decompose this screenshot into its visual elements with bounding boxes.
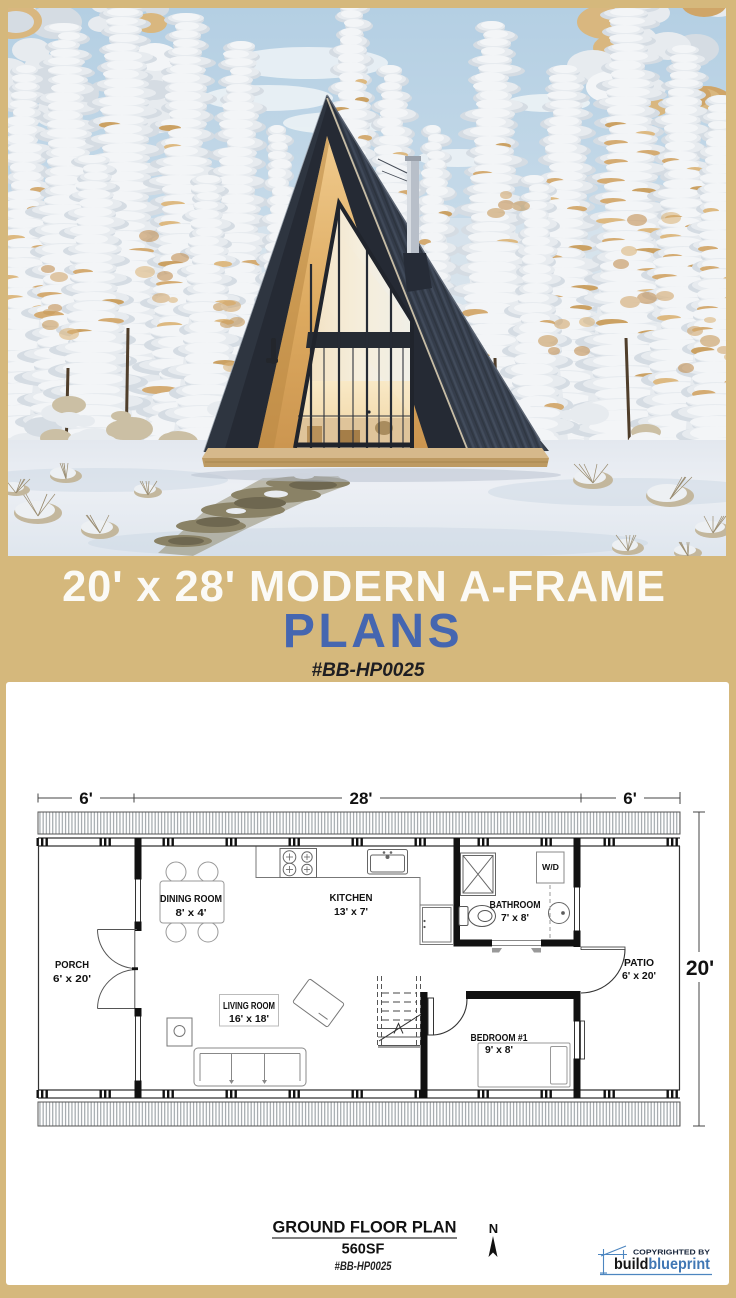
svg-text:6': 6' xyxy=(79,789,93,808)
svg-text:16' x 18': 16' x 18' xyxy=(229,1013,269,1025)
svg-text:560SF: 560SF xyxy=(342,1242,385,1258)
svg-text:BATHROOM: BATHROOM xyxy=(490,899,541,911)
svg-text:LIVING ROOM: LIVING ROOM xyxy=(223,1000,275,1012)
svg-text:#BB-HP0025: #BB-HP0025 xyxy=(335,1259,392,1273)
svg-text:6' x 20': 6' x 20' xyxy=(622,970,656,982)
svg-text:PATIO: PATIO xyxy=(624,957,654,969)
svg-text:20': 20' xyxy=(686,957,714,980)
svg-text:13' x 7': 13' x 7' xyxy=(334,906,368,918)
svg-text:DINING ROOM: DINING ROOM xyxy=(160,893,222,905)
svg-text:N: N xyxy=(489,1221,498,1236)
svg-text:buildblueprint: buildblueprint xyxy=(614,1256,710,1273)
svg-text:W/D: W/D xyxy=(542,862,559,872)
svg-text:6': 6' xyxy=(623,789,637,808)
svg-text:PORCH: PORCH xyxy=(55,959,89,971)
svg-text:6' x 20': 6' x 20' xyxy=(53,973,91,985)
svg-text:7' x 8': 7' x 8' xyxy=(501,912,529,924)
svg-text:BEDROOM #1: BEDROOM #1 xyxy=(471,1032,528,1044)
svg-text:28': 28' xyxy=(350,789,373,808)
svg-text:9' x 8': 9' x 8' xyxy=(485,1044,513,1056)
svg-text:GROUND FLOOR PLAN: GROUND FLOOR PLAN xyxy=(273,1218,457,1237)
svg-text:KITCHEN: KITCHEN xyxy=(330,892,373,904)
svg-text:8' x 4': 8' x 4' xyxy=(176,907,207,919)
